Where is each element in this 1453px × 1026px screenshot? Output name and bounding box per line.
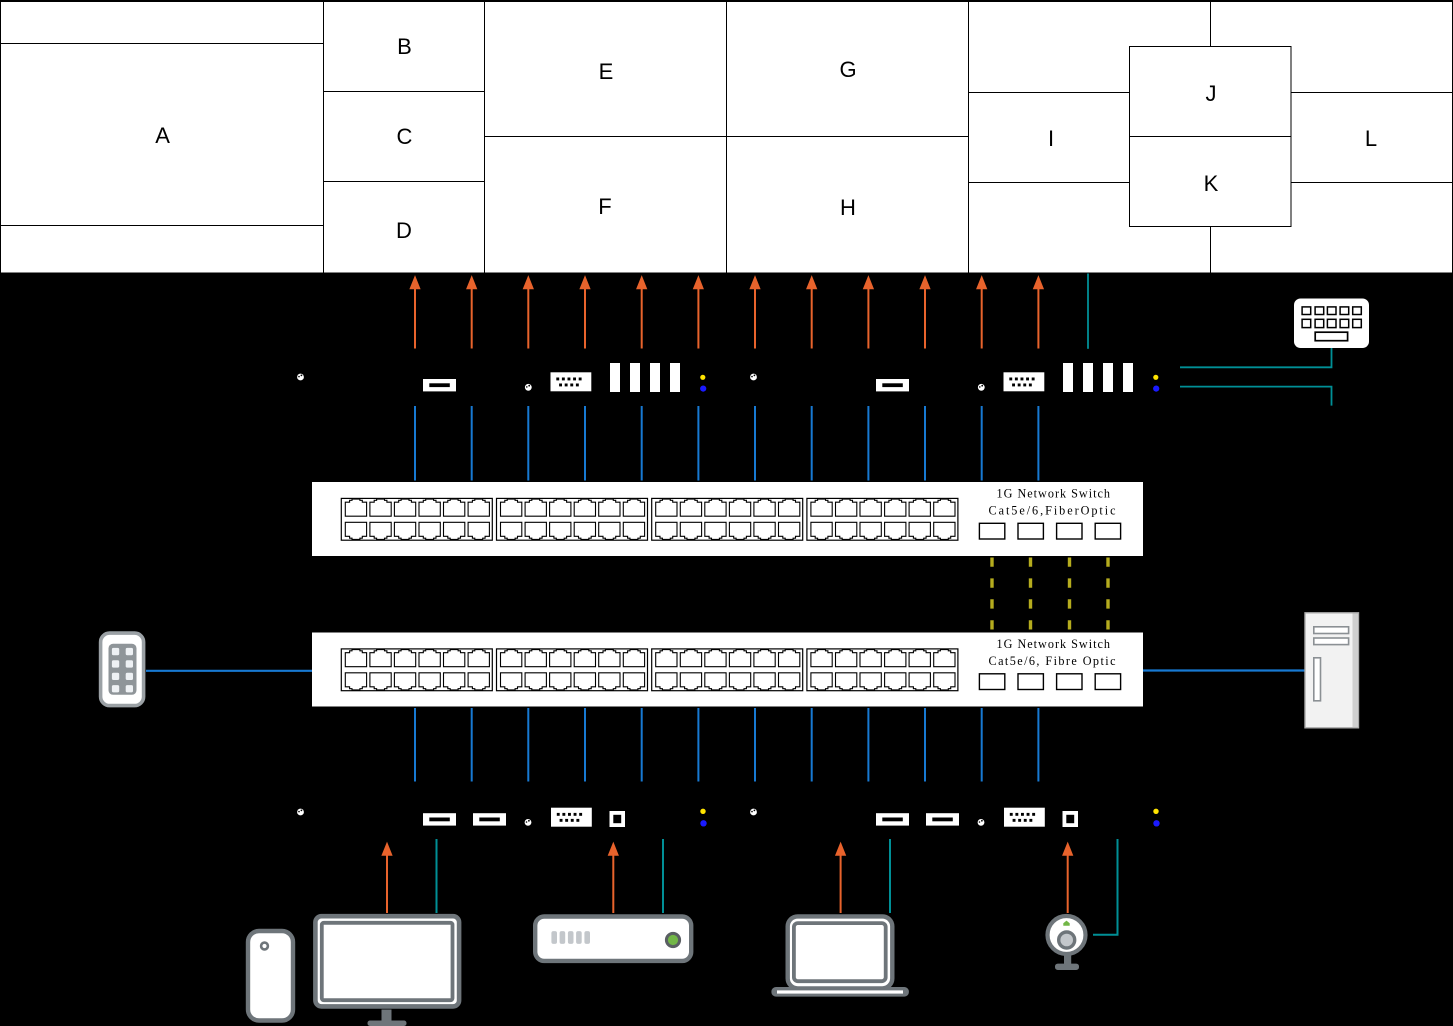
svg-text:L: L [1365, 126, 1377, 151]
svg-text:I: I [1048, 126, 1054, 151]
svg-text:1G Network Switch: 1G Network Switch [997, 487, 1111, 501]
svg-text:D: D [396, 218, 412, 243]
svg-text:E: E [599, 59, 614, 84]
svg-text:H: H [840, 195, 856, 220]
svg-text:1G Network Switch: 1G Network Switch [997, 637, 1111, 651]
svg-text:G: G [839, 57, 856, 82]
svg-text:A: A [155, 123, 170, 148]
svg-text:J: J [1206, 81, 1217, 106]
svg-text:C: C [397, 124, 413, 149]
svg-text:K: K [1204, 171, 1219, 196]
svg-text:B: B [397, 34, 412, 59]
svg-text:F: F [598, 194, 611, 219]
